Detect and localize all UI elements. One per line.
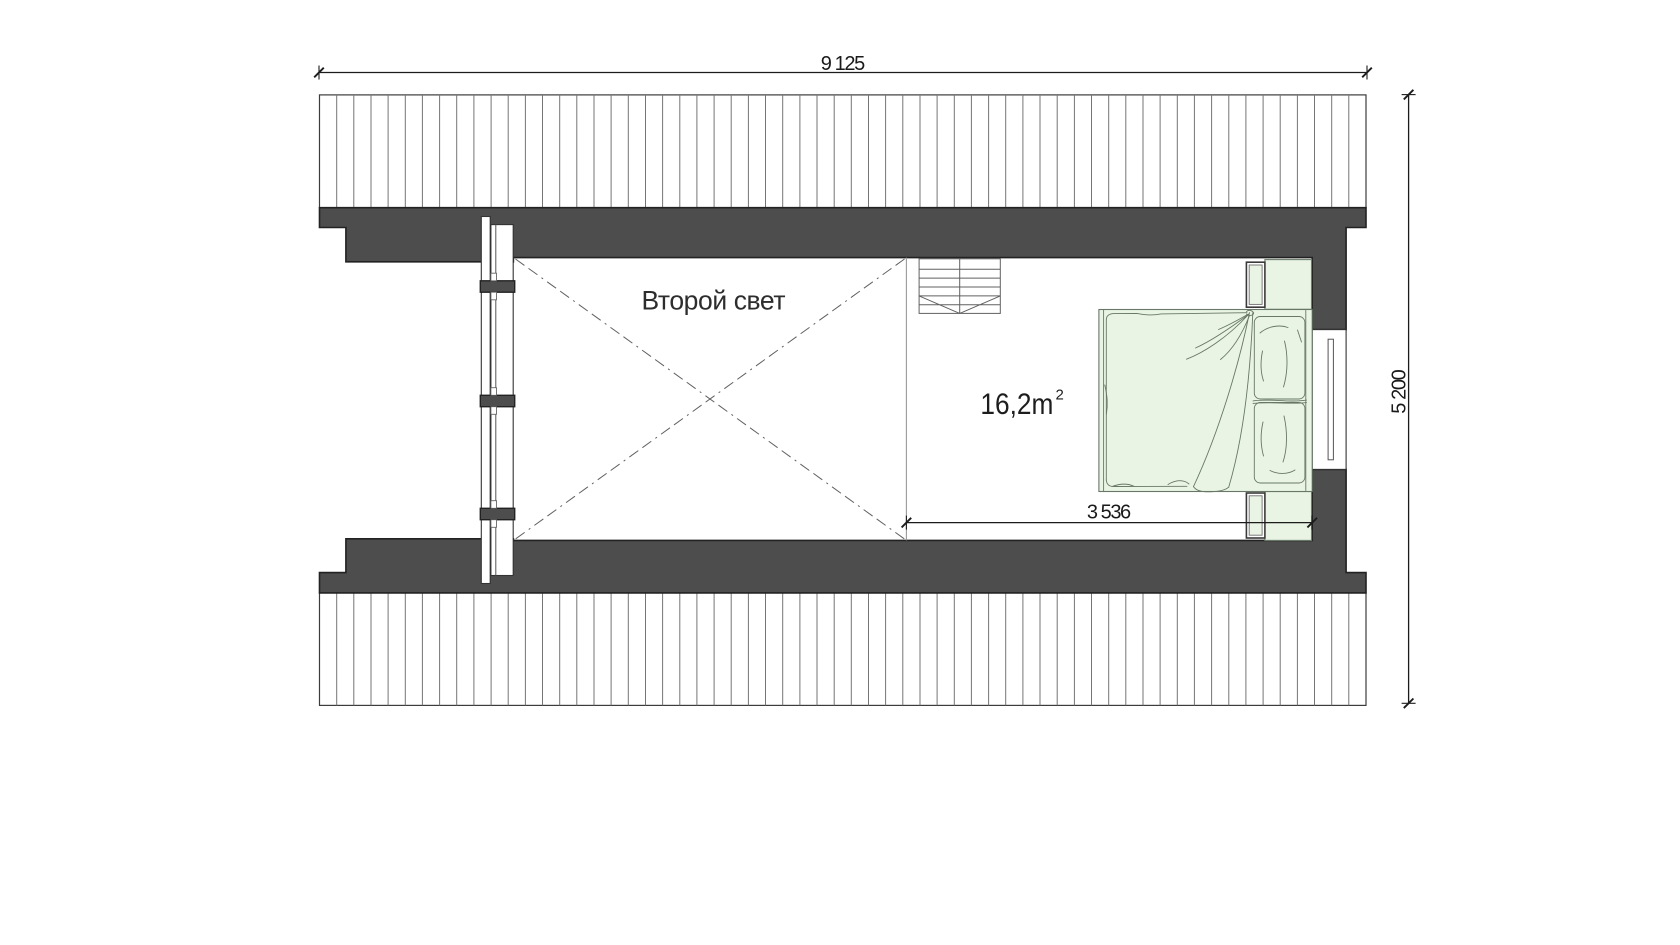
svg-text:2: 2 (1056, 387, 1064, 404)
svg-text:3 536: 3 536 (1087, 502, 1131, 524)
svg-text:Второй свет: Второй свет (642, 286, 786, 316)
svg-text:9 125: 9 125 (821, 53, 866, 75)
svg-text:16,2m: 16,2m (980, 388, 1053, 421)
svg-text:5 200: 5 200 (1389, 369, 1411, 414)
